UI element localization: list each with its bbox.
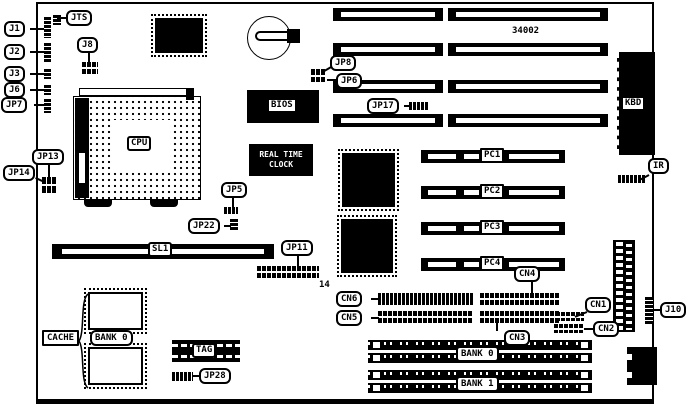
power-connector: [613, 240, 635, 332]
pci-slot-2-label: PC2: [480, 184, 504, 199]
j6-callout: J6: [4, 82, 25, 98]
board-part-number: 34002: [512, 26, 539, 36]
pci-slot-1-label: PC1: [480, 148, 504, 163]
jp22-connector: [230, 219, 238, 231]
kbd-label: KBD: [622, 97, 644, 110]
j8-connector: [82, 62, 98, 74]
rtc-chip: REAL TIME CLOCK: [249, 144, 313, 176]
cache-chip-2: [88, 347, 143, 385]
jp7-leader: [34, 104, 44, 106]
j8-leader: [88, 53, 90, 62]
j6-leader: [30, 89, 44, 91]
cn5-callout: CN5: [336, 310, 362, 326]
cpu-foot-left: [84, 200, 112, 207]
jp28-connector: [172, 372, 193, 381]
jp8-callout: JP8: [330, 55, 356, 71]
cn5-connector: [378, 311, 473, 323]
jp17-callout: JP17: [367, 98, 399, 114]
rtc-label-line1: REAL TIME: [249, 150, 313, 160]
j3-leader: [30, 73, 44, 75]
cn1-callout: CN1: [585, 297, 611, 313]
jp11-connector: [257, 266, 319, 278]
cn3-callout: CN3: [504, 330, 530, 346]
pci-slot-1: PC1: [421, 150, 565, 163]
jp17-leader: [404, 105, 410, 107]
controller-ic-2: [341, 219, 393, 273]
sl1-slot: SL1: [52, 244, 274, 259]
cache-bank0-label: BANK 0: [90, 330, 133, 346]
j3-callout: J3: [4, 66, 25, 82]
ir-callout: IR: [648, 158, 669, 174]
cpu-lever: [79, 88, 190, 96]
jp11-callout: JP11: [281, 240, 313, 256]
j2-leader: [30, 51, 44, 53]
pci-slot-3-label: PC3: [480, 220, 504, 235]
jp7-connector: [44, 99, 51, 113]
j3-connector: [44, 69, 51, 79]
isa-slot-2-right: [448, 43, 608, 56]
bios-chip: BIOS: [247, 90, 319, 123]
jp5-callout: JP5: [221, 182, 247, 198]
bios-label: BIOS: [267, 98, 297, 113]
battery-terminal: [287, 29, 300, 43]
chipset-ic: [155, 18, 203, 53]
cn3-leader: [496, 323, 498, 331]
tag-label: TAG: [192, 343, 216, 358]
isa-slot-4-right: [448, 114, 608, 127]
jts-leader: [57, 17, 66, 19]
jp28-callout: JP28: [199, 368, 231, 384]
cpu-label: CPU: [127, 136, 151, 151]
pci-slot-2: PC2: [421, 186, 565, 199]
pci-slot-3: PC3: [421, 222, 565, 235]
jp7-callout: JP7: [1, 97, 27, 113]
jts-callout: JTS: [66, 10, 92, 26]
motherboard-diagram: 34002 BIOS REAL TIME CLOCK KBD IR J10: [0, 0, 693, 416]
j2-connector: [44, 43, 51, 63]
cn5-leader: [371, 317, 379, 319]
cn3-connector: [480, 311, 560, 323]
jp6-callout: JP6: [336, 73, 362, 89]
pci-slot-4-label: PC4: [480, 256, 504, 271]
cpu-foot-right: [150, 200, 178, 207]
jp13-callout: JP13: [32, 149, 64, 165]
battery-clip: [255, 31, 289, 41]
j1-connector: [44, 17, 51, 38]
cn6-callout: CN6: [336, 291, 362, 307]
jp17-connector: [409, 102, 429, 110]
jp11-pin-count: 14: [319, 280, 330, 290]
cn4-leader: [531, 282, 533, 293]
j1-leader: [30, 28, 44, 30]
sl1-label: SL1: [148, 242, 172, 257]
cn2-connector: [554, 324, 584, 333]
isa-slot-3-right: [448, 80, 608, 93]
isa-slot-1-left: [333, 8, 443, 21]
jp5-leader: [232, 198, 234, 207]
jp5-connector: [224, 207, 238, 214]
cpu-socket-slider: [78, 152, 86, 184]
cache-chip-1: [88, 292, 143, 330]
cn6-leader: [371, 298, 379, 300]
cn4-connector: [480, 293, 560, 305]
cache-callout: CACHE: [42, 330, 79, 346]
j6-connector: [44, 85, 51, 95]
cpu-die-area: CPU: [112, 120, 170, 172]
cn6-connector: [378, 293, 473, 305]
cn4-callout: CN4: [514, 266, 540, 282]
jp22-leader: [224, 225, 231, 227]
j2-callout: J2: [4, 44, 25, 60]
controller-ic-1: [342, 153, 395, 207]
pci-slot-4: PC4: [421, 258, 565, 271]
isa-slot-1-right: [448, 8, 608, 21]
j8-callout: J8: [77, 37, 98, 53]
jp14-callout: JP14: [3, 165, 35, 181]
simm-bank0-label: BANK 0: [456, 346, 499, 362]
tag-chip: TAG: [172, 340, 240, 362]
isa-slot-4-left: [333, 114, 443, 127]
jp13-jp14-connector: [42, 177, 57, 193]
cn2-callout: CN2: [593, 321, 619, 337]
rtc-label-line2: CLOCK: [249, 160, 313, 170]
jp22-callout: JP22: [188, 218, 220, 234]
j10-callout: J10: [660, 302, 686, 318]
din-connector: [627, 347, 657, 385]
jp11-leader: [297, 256, 299, 266]
kbd-connector: KBD: [617, 52, 655, 155]
jp13-leader: [48, 165, 50, 177]
j1-callout: J1: [4, 21, 25, 37]
simm-bank1-label: BANK 1: [456, 376, 499, 392]
